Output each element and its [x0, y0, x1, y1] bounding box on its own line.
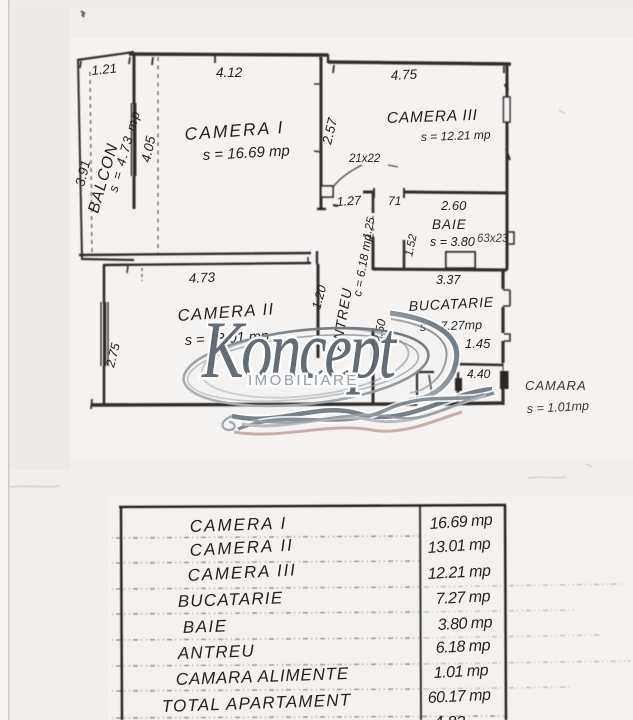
svg-text:1.01 mp: 1.01 mp: [433, 662, 489, 682]
svg-text:BAIE: BAIE: [432, 217, 467, 232]
svg-text:4.83: 4.83: [434, 714, 465, 720]
svg-text:BAIE: BAIE: [182, 616, 227, 637]
svg-text:4.12: 4.12: [216, 65, 243, 80]
svg-text:s = 12.21 mp: s = 12.21 mp: [421, 128, 491, 144]
svg-text:71: 71: [388, 194, 401, 208]
svg-text:12.21 mp: 12.21 mp: [427, 563, 491, 583]
svg-text:6.18 mp: 6.18 mp: [435, 637, 491, 657]
svg-text:3.37: 3.37: [436, 273, 461, 287]
svg-text:ANTREU: ANTREU: [176, 641, 255, 663]
svg-text:CAMERA I: CAMERA I: [189, 514, 287, 536]
svg-text:3.80 mp: 3.80 mp: [437, 614, 493, 634]
svg-text:s = 3.80: s = 3.80: [430, 235, 475, 249]
svg-text:7.27 mp: 7.27 mp: [435, 588, 491, 608]
svg-text:1.45: 1.45: [465, 336, 491, 351]
svg-text:CAMERA III: CAMERA III: [387, 107, 479, 127]
svg-text:63x23: 63x23: [477, 233, 509, 245]
svg-text:4.75: 4.75: [390, 67, 418, 83]
svg-text:1.27: 1.27: [336, 193, 362, 209]
svg-text:CAMARA: CAMARA: [525, 378, 587, 393]
svg-text:4.73: 4.73: [188, 270, 216, 286]
svg-text:21x22: 21x22: [348, 153, 381, 165]
svg-text:2.60: 2.60: [440, 198, 467, 213]
svg-text:BUCATARIE: BUCATARIE: [177, 588, 283, 611]
svg-text:1.21: 1.21: [91, 60, 118, 78]
svg-text:60.17 mp: 60.17 mp: [427, 687, 491, 707]
svg-text:4.40: 4.40: [467, 367, 491, 381]
svg-text:IMOBILIARE: IMOBILIARE: [248, 372, 359, 389]
